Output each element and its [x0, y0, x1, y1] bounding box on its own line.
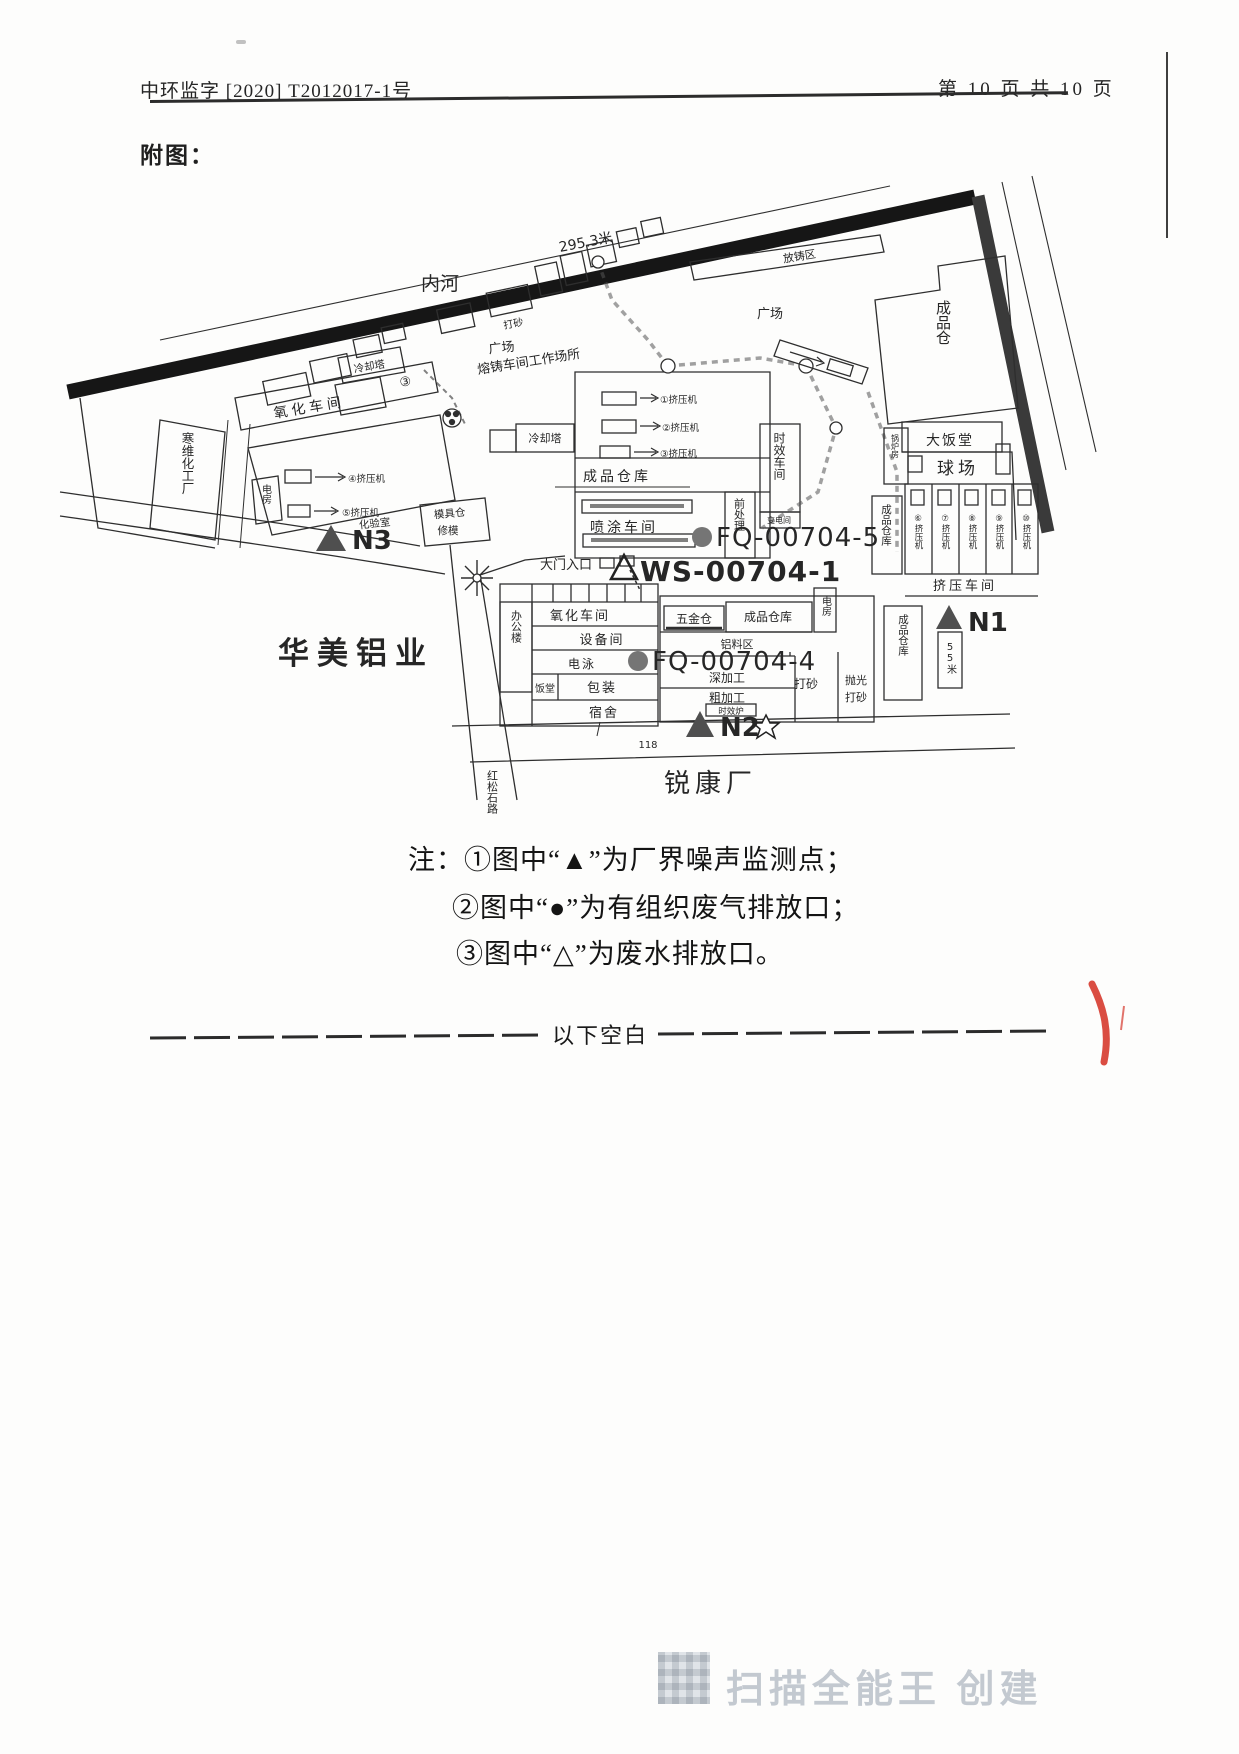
aluminium-material-area-label: 铝料区 [721, 637, 754, 651]
finished-goods-vertical-1: 成品仓库 [880, 504, 892, 547]
red-pen-mark [1092, 984, 1106, 1062]
circled-3: ③ [399, 374, 413, 391]
noise-point-n1-label: N1 [968, 608, 1008, 638]
oxidation-workshop-label-2: 氧化车间 [550, 608, 610, 624]
dimension-118: 118 [638, 740, 657, 751]
equipment-room-label: 设备间 [579, 632, 624, 648]
river-length: 295.3米 [558, 230, 614, 256]
office-building-label: 办公楼 [510, 610, 523, 644]
mould-repair-label: 修模 [438, 524, 459, 537]
ruikang-factory-label: 锐康厂 [664, 769, 757, 799]
sandblast-label-2: 打砂 [845, 690, 867, 704]
press-3-label: ③挤压机 [660, 448, 698, 460]
ws-outfall-id: WS-00704-1 [640, 555, 841, 588]
noise-point-n2-label: N2 [720, 713, 760, 743]
ball-court-label: 球场 [937, 459, 979, 479]
oxidation-workshop-label-1: 氧化车间 [272, 393, 346, 422]
mould-warehouse-label: 模具仓 [433, 506, 466, 522]
pretreatment-label: 前处理 [733, 497, 746, 531]
cooling-tower-label-2: 冷却塔 [529, 432, 562, 445]
spray-workshop-label: 喷涂车间 [590, 519, 658, 536]
cooling-tower-label-1: 冷却塔 [353, 357, 387, 375]
boiler-room-label: 锅炉房 [891, 433, 900, 459]
noise-monitor-triangle-n1 [936, 605, 962, 629]
sandblast-top-label: 打砂 [502, 315, 524, 332]
sandblast-label: 打砂 [794, 677, 818, 691]
press-row-a-label: ④挤压机 [348, 473, 386, 485]
press-col-6: ⑥挤压机 [913, 514, 923, 550]
extrusion-workshop-label: 挤压车间 [933, 578, 997, 594]
noise-point-n3-label: N3 [352, 526, 392, 556]
scanned-document-page: 中环监字 [2020] T2012017-1号 第 10 页 共 10 页 附图… [0, 0, 1239, 1754]
divider-label: 以下空白 [552, 1018, 648, 1051]
noise-monitor-triangle-n2 [686, 711, 714, 737]
finished-goods-warehouse-mid-label: 成品仓库 [583, 469, 651, 485]
canteen-small-label: 饭堂 [535, 683, 555, 695]
exhaust-outlet-dot-fq4 [628, 651, 648, 671]
note-line-2: ②图中“●”为有组织废气排放口； [452, 886, 859, 925]
divider-dash-left [150, 1033, 542, 1039]
exhaust-outlet-dot-fq5 [692, 527, 712, 547]
finished-goods-vertical-2: 成品仓库 [897, 614, 909, 657]
press-col-7: ⑦挤压机 [940, 514, 950, 550]
press-col-10: ⑩挤压机 [1021, 514, 1031, 550]
power-room-label-1: 电房 [260, 483, 272, 505]
packaging-label: 包装 [587, 681, 617, 696]
press-col-9: ⑨挤压机 [994, 514, 1004, 550]
power-room-label-2: 电房 [820, 595, 832, 617]
scanner-watermark: 扫描全能王 创建 [726, 1658, 1043, 1713]
note-line-3: ③图中“△”为废水排放口。 [456, 932, 784, 971]
hardware-warehouse-label: 五金仓 [676, 611, 712, 626]
river-label: 内河 [421, 273, 459, 295]
canteen-label: 大饭堂 [926, 433, 974, 449]
dormitory-label: 宿舍 [589, 705, 619, 721]
plaza-label-1: 广场 [488, 340, 515, 358]
aging-workshop-label: 时效车间 [772, 432, 786, 480]
electrophoresis-label: 电泳 [568, 657, 596, 671]
main-gate-label: 大门入口 [540, 558, 592, 573]
red-pen-tick [1121, 1006, 1124, 1030]
polish-label: 抛光 [845, 673, 867, 687]
press-2-label: ②挤压机 [662, 422, 700, 434]
huamei-aluminium-label: 华美铝业 [278, 636, 434, 672]
hanwei-chemical-plant-label: 寒维化工厂 [180, 431, 195, 495]
plaza-label-2: 广场 [757, 307, 783, 322]
deep-processing-label: 深加工 [709, 671, 745, 685]
site-plan-map: 内河 295.3米 放铸区 广场 广场 熔铸车间工作场所 打砂 冷却塔 氧化车间… [0, 0, 1239, 1754]
note-line-1: 注：①图中“▲”为厂界噪声监测点； [408, 838, 854, 877]
press-1-label: ①挤压机 [660, 394, 698, 406]
distance-55m-label: 55米 [945, 642, 957, 675]
road-name-label: 红松石路 [486, 770, 499, 815]
noise-monitor-triangle-n3 [316, 525, 346, 551]
finished-goods-right-label: 成品仓库 [744, 609, 792, 624]
divider-dash-right [658, 1029, 1050, 1035]
rough-processing-label: 粗加工 [709, 691, 745, 705]
qr-code-icon [658, 1652, 710, 1704]
finished-goods-big-warehouse-label: 成品仓 [934, 300, 952, 345]
substation-label: 变电间 [767, 515, 791, 525]
press-col-8: ⑧挤压机 [967, 514, 977, 550]
